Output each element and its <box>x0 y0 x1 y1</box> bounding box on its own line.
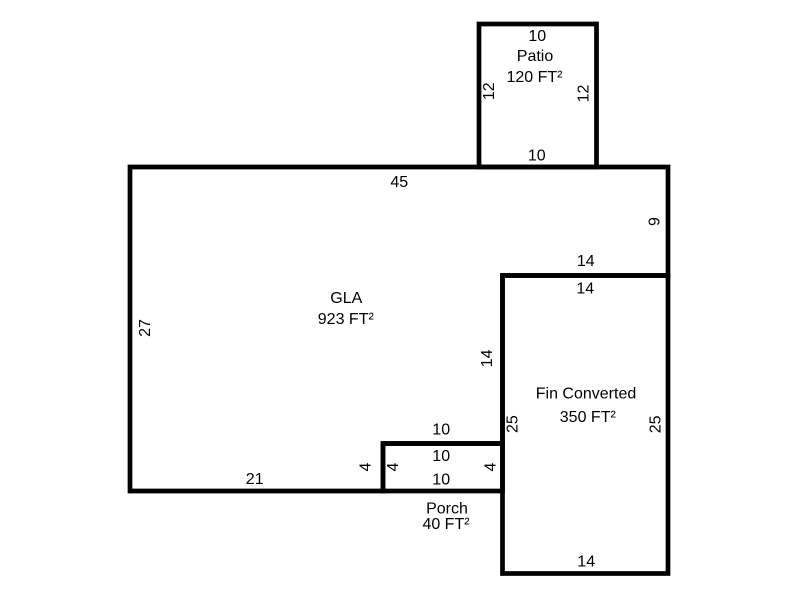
svg-text:40 FT²: 40 FT² <box>422 516 470 533</box>
svg-text:25: 25 <box>647 415 664 433</box>
svg-text:9: 9 <box>647 217 664 226</box>
svg-text:12: 12 <box>576 85 593 103</box>
svg-text:350 FT²: 350 FT² <box>560 409 617 426</box>
svg-text:Patio: Patio <box>517 48 554 65</box>
svg-text:GLA: GLA <box>330 290 362 307</box>
svg-text:923 FT²: 923 FT² <box>318 311 375 328</box>
svg-text:4: 4 <box>482 462 499 471</box>
svg-text:120 FT²: 120 FT² <box>506 69 563 86</box>
svg-text:14: 14 <box>576 280 594 297</box>
svg-text:10: 10 <box>432 448 450 465</box>
svg-text:21: 21 <box>246 471 264 488</box>
svg-text:4: 4 <box>357 462 374 471</box>
svg-text:14: 14 <box>577 253 595 270</box>
svg-text:10: 10 <box>528 147 546 164</box>
svg-text:10: 10 <box>528 28 546 45</box>
svg-text:14: 14 <box>479 349 496 367</box>
svg-text:45: 45 <box>390 174 408 191</box>
svg-text:Fin Converted: Fin Converted <box>536 385 637 402</box>
svg-text:10: 10 <box>432 471 450 488</box>
svg-text:10: 10 <box>432 421 450 438</box>
svg-text:27: 27 <box>137 319 154 337</box>
svg-text:25: 25 <box>505 415 522 433</box>
svg-text:12: 12 <box>481 82 498 100</box>
svg-text:4: 4 <box>385 462 402 471</box>
svg-text:14: 14 <box>577 553 595 570</box>
svg-text:Porch: Porch <box>426 501 468 518</box>
